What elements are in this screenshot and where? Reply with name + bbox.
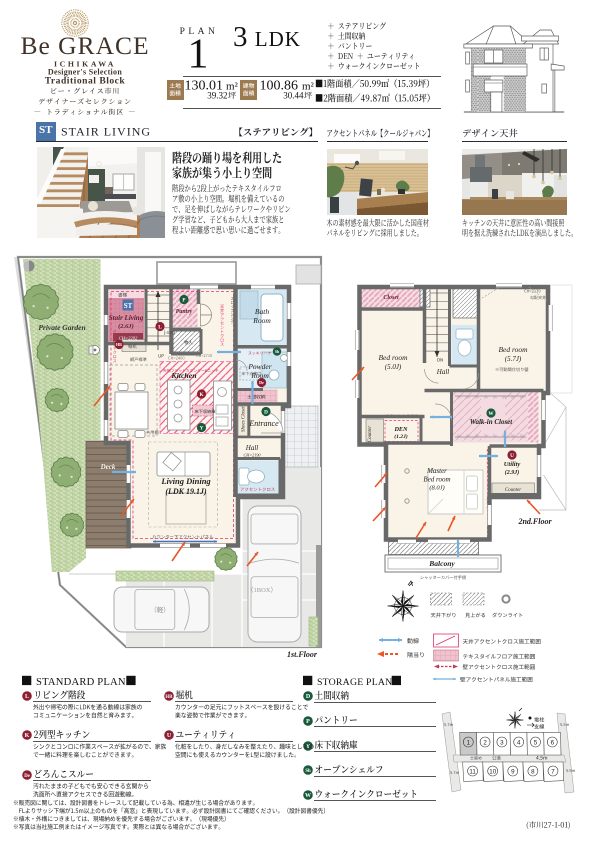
- svg-text:2nd.Floor: 2nd.Floor: [517, 517, 552, 526]
- svg-text:（1BOX）: （1BOX）: [247, 586, 277, 594]
- svg-text:Hall: Hall: [436, 368, 450, 376]
- svg-text:Closet: Closet: [383, 295, 399, 301]
- svg-text:D: D: [264, 409, 268, 415]
- svg-text:Master: Master: [426, 467, 447, 475]
- svg-text:ST: ST: [124, 302, 133, 310]
- svg-text:Private Garden: Private Garden: [38, 323, 85, 332]
- svg-text:Living Dining: Living Dining: [160, 476, 211, 486]
- svg-text:CH=2292: CH=2292: [119, 336, 138, 341]
- svg-text:(2.9J): (2.9J): [505, 469, 520, 476]
- svg-text:Hall: Hall: [245, 444, 259, 452]
- svg-text:L: L: [158, 324, 162, 330]
- svg-text:Room: Room: [252, 316, 271, 325]
- svg-text:Balcony: Balcony: [428, 559, 455, 568]
- svg-text:[-410]: [-410]: [164, 330, 175, 335]
- svg-text:Stair Living: Stair Living: [109, 314, 144, 322]
- svg-text:Entrance: Entrance: [248, 419, 279, 428]
- svg-text:Y: Y: [200, 425, 204, 431]
- svg-text:HR: HR: [116, 342, 122, 347]
- svg-text:Powder: Powder: [247, 362, 271, 371]
- svg-text:Shoes Closet: Shoes Closet: [242, 406, 247, 432]
- svg-text:Utility: Utility: [504, 461, 521, 468]
- svg-text:Deck: Deck: [100, 463, 116, 471]
- svg-text:U: U: [510, 453, 514, 459]
- svg-text:De: De: [259, 380, 264, 385]
- svg-text:(5.0J): (5.0J): [385, 363, 402, 371]
- svg-text:CH=2190: CH=2190: [243, 453, 261, 458]
- svg-text:K: K: [199, 392, 203, 398]
- svg-text:DEN: DEN: [393, 426, 408, 433]
- svg-text:(1.2J): (1.2J): [394, 433, 408, 440]
- svg-text:Bed room: Bed room: [498, 345, 528, 354]
- svg-text:(8.0J): (8.0J): [429, 485, 444, 492]
- svg-text:Counter: Counter: [505, 488, 521, 493]
- svg-text:Kitchen: Kitchen: [170, 371, 196, 380]
- svg-text:Bed room: Bed room: [423, 476, 450, 484]
- svg-text:Counter: Counter: [368, 426, 373, 442]
- svg-text:(2.6J): (2.6J): [118, 323, 134, 330]
- svg-text:（軽）: （軽）: [150, 605, 170, 614]
- svg-text:Walk-in Closet: Walk-in Closet: [470, 418, 514, 426]
- svg-text:Pantry: Pantry: [176, 309, 193, 315]
- svg-text:1st.Floor: 1st.Floor: [287, 650, 318, 659]
- svg-text:Bath: Bath: [255, 307, 269, 316]
- svg-text:(LDK 19.1J): (LDK 19.1J): [165, 487, 207, 496]
- svg-text:Bed room: Bed room: [378, 353, 408, 362]
- svg-text:(5.7J): (5.7J): [505, 355, 522, 363]
- svg-text:W: W: [488, 411, 494, 417]
